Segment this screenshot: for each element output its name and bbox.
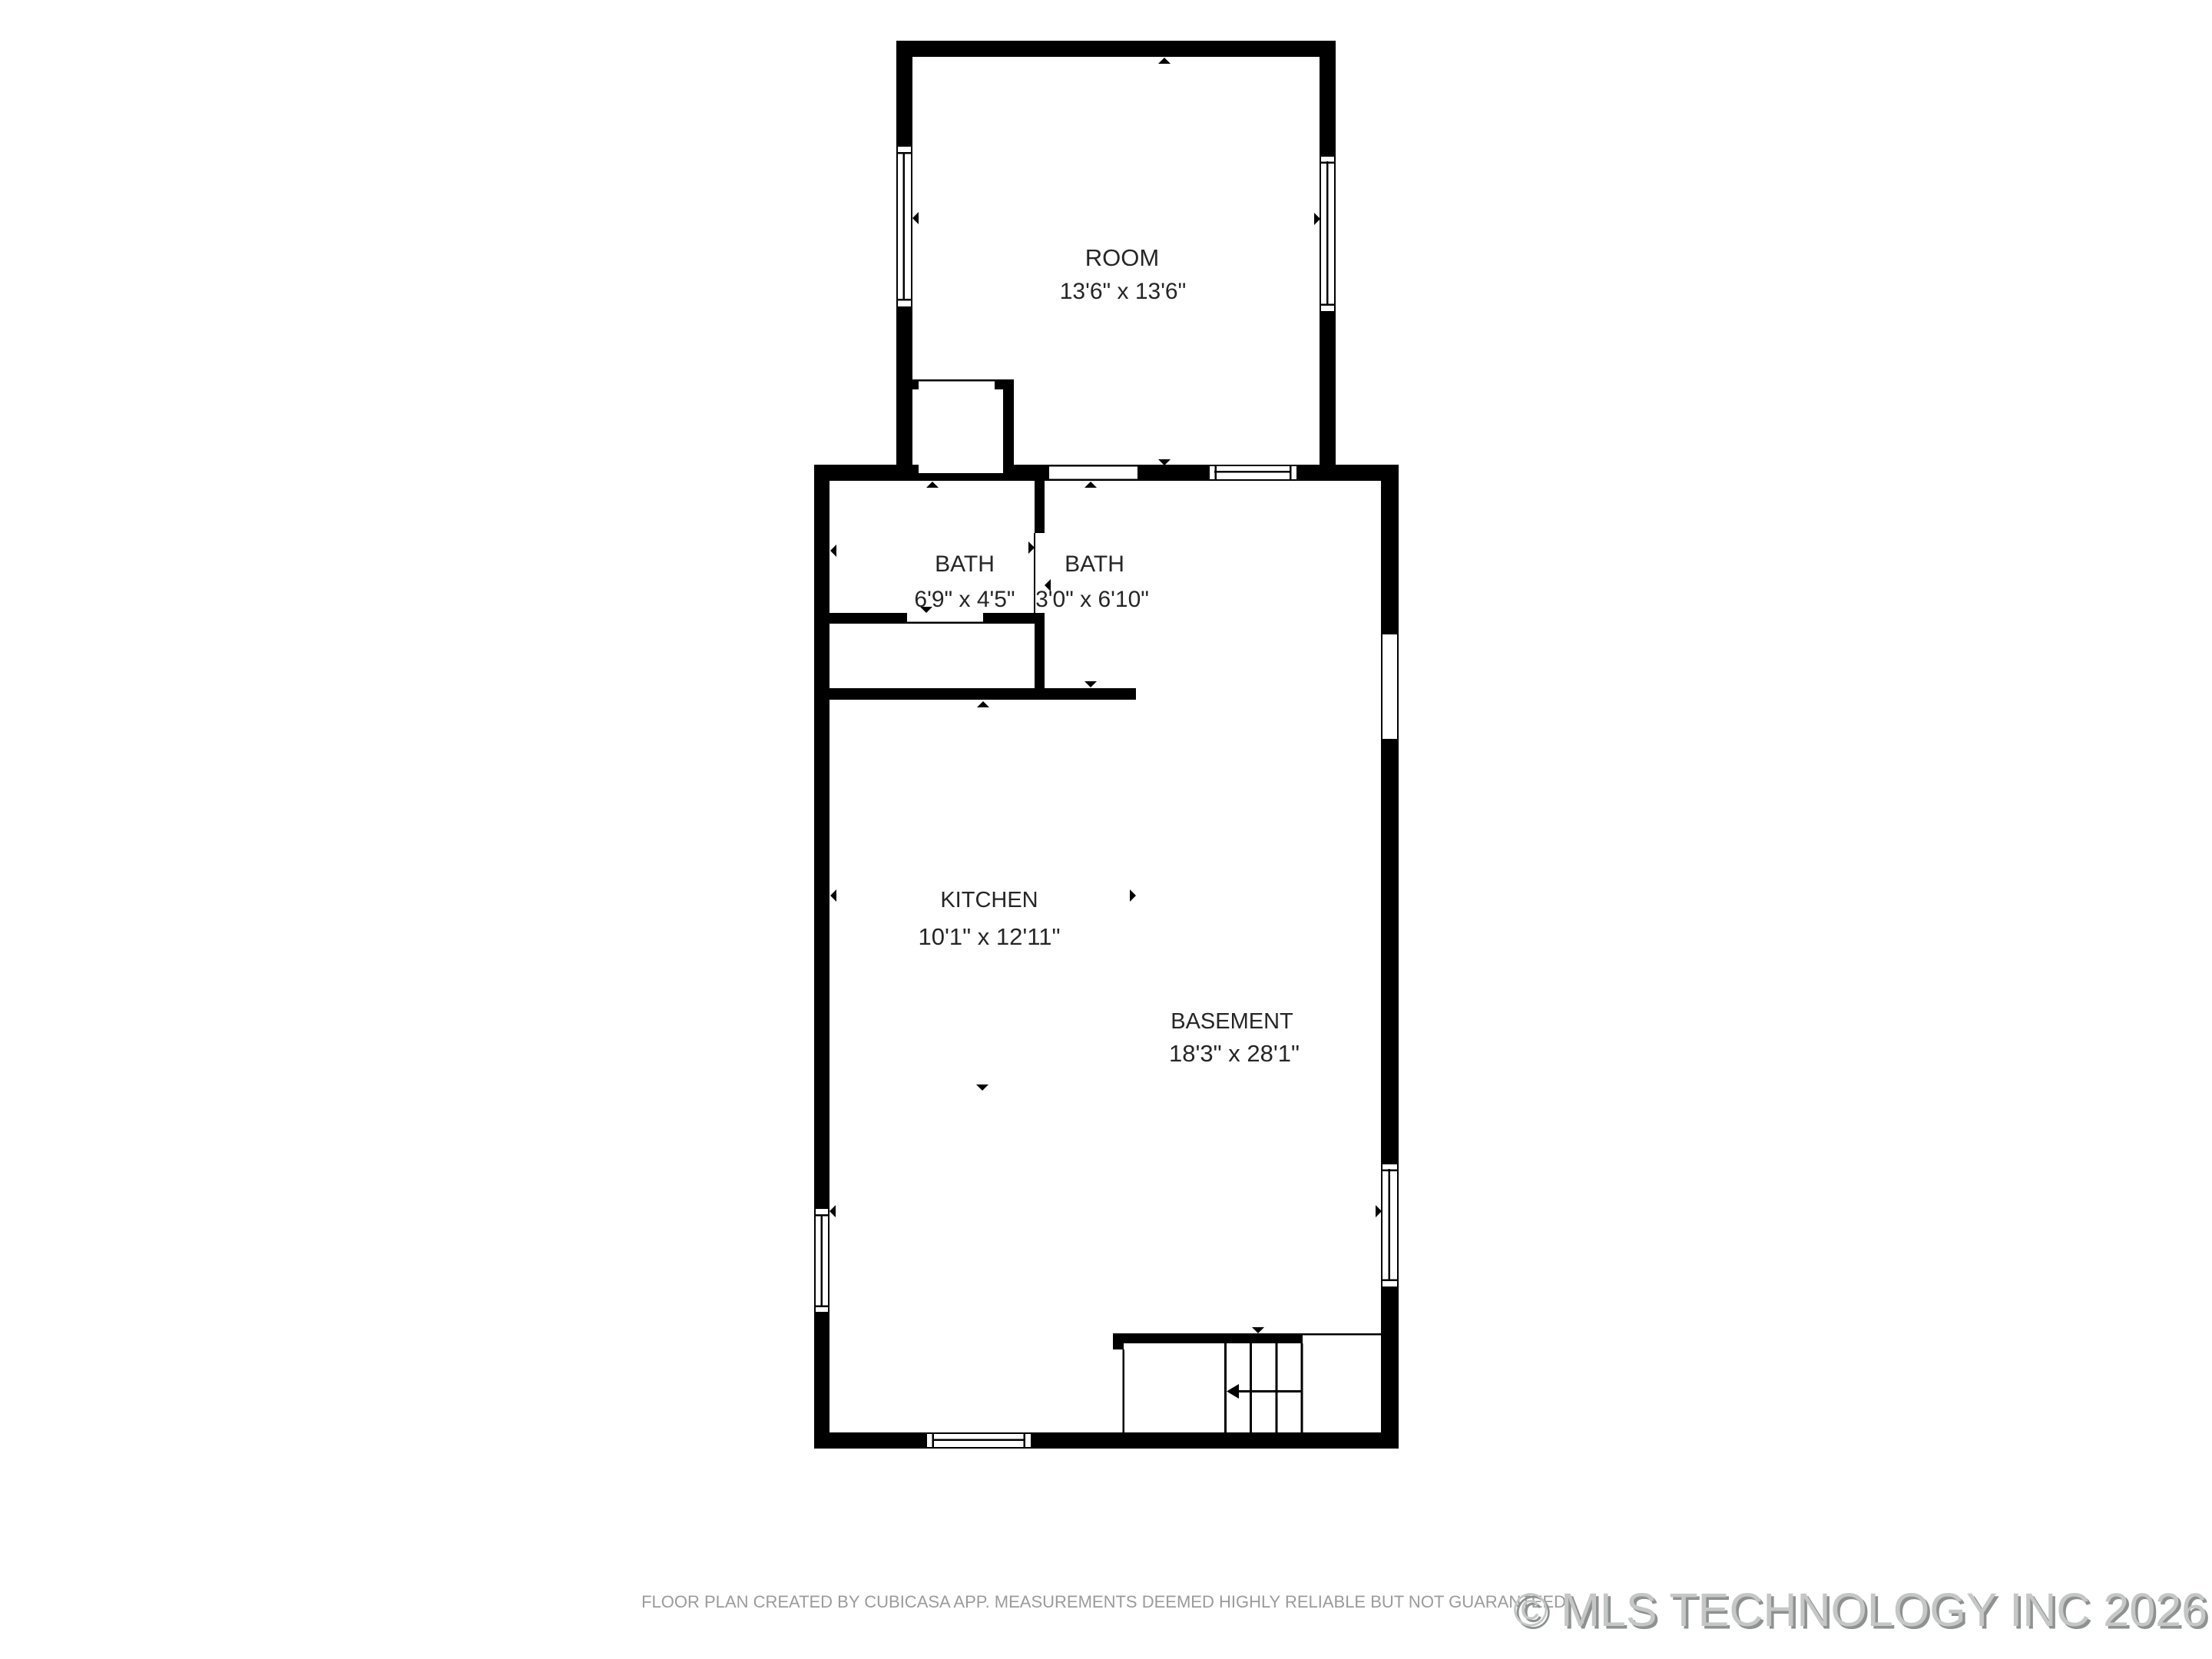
svg-text:10'1" x 12'11": 10'1" x 12'11": [919, 923, 1061, 950]
svg-text:BASEMENT: BASEMENT: [1171, 1009, 1293, 1034]
svg-text:6'9" x 4'5": 6'9" x 4'5": [914, 587, 1015, 612]
svg-text:3'0" x 6'10": 3'0" x 6'10": [1035, 587, 1149, 612]
svg-text:© MLS TECHNOLOGY INC 2026: © MLS TECHNOLOGY INC 2026: [1513, 1584, 2207, 1636]
svg-text:13'6" x 13'6": 13'6" x 13'6": [1060, 279, 1187, 304]
svg-text:BATH: BATH: [935, 551, 995, 577]
svg-text:ROOM: ROOM: [1085, 244, 1159, 271]
svg-text:KITCHEN: KITCHEN: [940, 888, 1038, 912]
svg-text:FLOOR PLAN CREATED BY CUBICASA: FLOOR PLAN CREATED BY CUBICASA APP. MEAS…: [641, 1592, 1566, 1611]
svg-text:18'3" x 28'1": 18'3" x 28'1": [1169, 1040, 1300, 1067]
svg-text:BATH: BATH: [1065, 551, 1124, 577]
